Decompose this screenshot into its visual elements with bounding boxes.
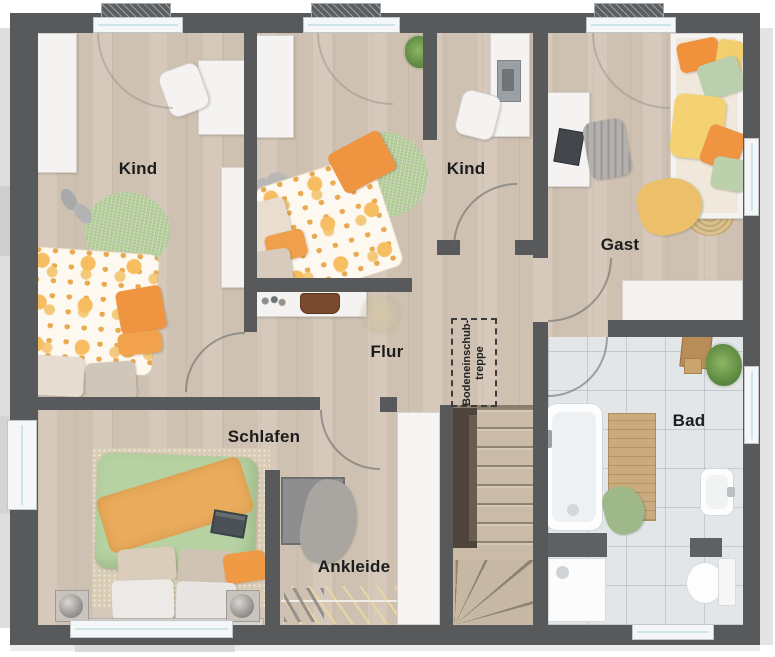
bed-schlafen-orange-pillow (222, 549, 268, 585)
wall-center-vertical-upper (533, 33, 548, 258)
wall-post-schlafen-door (380, 397, 397, 412)
lamp-left (59, 594, 83, 618)
room-label-kind1: Kind (119, 159, 158, 179)
outer-shadow-left (0, 28, 10, 628)
bed-kind1-orange-pillow (115, 284, 168, 335)
handbag-on-sideboard (300, 293, 340, 314)
window-gast-top (586, 17, 676, 33)
bed-schlafen-white-pillow-1 (111, 579, 174, 621)
loft-ladder-hatch: Bodeneinschub- treppe (451, 318, 497, 407)
toilet-tank (718, 558, 736, 606)
room-label-gast: Gast (601, 235, 640, 255)
window-gast-right (744, 138, 759, 216)
cabinet-gast (622, 280, 743, 322)
wardrobe-panel-ankleide (397, 412, 440, 625)
stair-treads (477, 408, 533, 560)
room-label-schlafen: Schlafen (228, 427, 300, 447)
wall-schlafen-top (10, 397, 320, 410)
wall-bad-top (608, 320, 743, 337)
bed-kind1-orange-strip-pillow (117, 330, 163, 356)
sink (700, 468, 734, 516)
outer-shadow-right (760, 28, 773, 645)
stair-winders (453, 560, 533, 625)
window-schlafen-bottom (70, 620, 233, 638)
loft-ladder-label: Bodeneinschub- treppe (461, 320, 487, 406)
room-label-ankleide: Ankleide (318, 557, 390, 577)
toilet-partition (690, 538, 722, 557)
wall-ankleide-stairs (440, 405, 453, 625)
room-label-kind2: Kind (447, 159, 486, 179)
wood-stool-small (684, 358, 702, 374)
window-kind2 (303, 17, 400, 33)
perfume-bottles (260, 294, 286, 308)
gray-garments (284, 588, 324, 622)
bed-kind1-beige-pillow-2 (85, 360, 138, 401)
plant-bad (706, 344, 742, 386)
stair-void-inner (469, 415, 477, 541)
outer-window-mark-left-top (0, 186, 10, 256)
bed-kind1-beige-pillow-1 (31, 355, 85, 398)
wall-nook-partition (423, 33, 437, 140)
wall-left (10, 13, 38, 645)
monitor-kind2 (497, 60, 521, 102)
wall-center-vertical-lower (533, 322, 548, 625)
room-label-flur: Flur (371, 342, 404, 362)
lamp-right (230, 594, 254, 618)
wall-right (743, 13, 760, 645)
window-bad-bottom (632, 624, 714, 640)
dried-plant-flur (358, 292, 404, 336)
bathtub (545, 403, 603, 531)
wall-kind2-flur (244, 278, 412, 292)
window-schlafen-left (7, 420, 37, 510)
wardrobe-kind2 (252, 35, 294, 138)
window-bad-right (744, 366, 759, 444)
shower-tray (548, 558, 606, 622)
outer-window-mark-bottom (75, 645, 235, 652)
window-kind1 (93, 17, 183, 33)
wall-schlafen-ankleide (265, 470, 280, 625)
stairwell (453, 405, 533, 625)
room-label-bad: Bad (673, 411, 706, 431)
tub-shower-divider (545, 533, 607, 557)
floor-plan: Bodeneinschub- treppe Kind Kind Gast Flu… (0, 0, 775, 657)
